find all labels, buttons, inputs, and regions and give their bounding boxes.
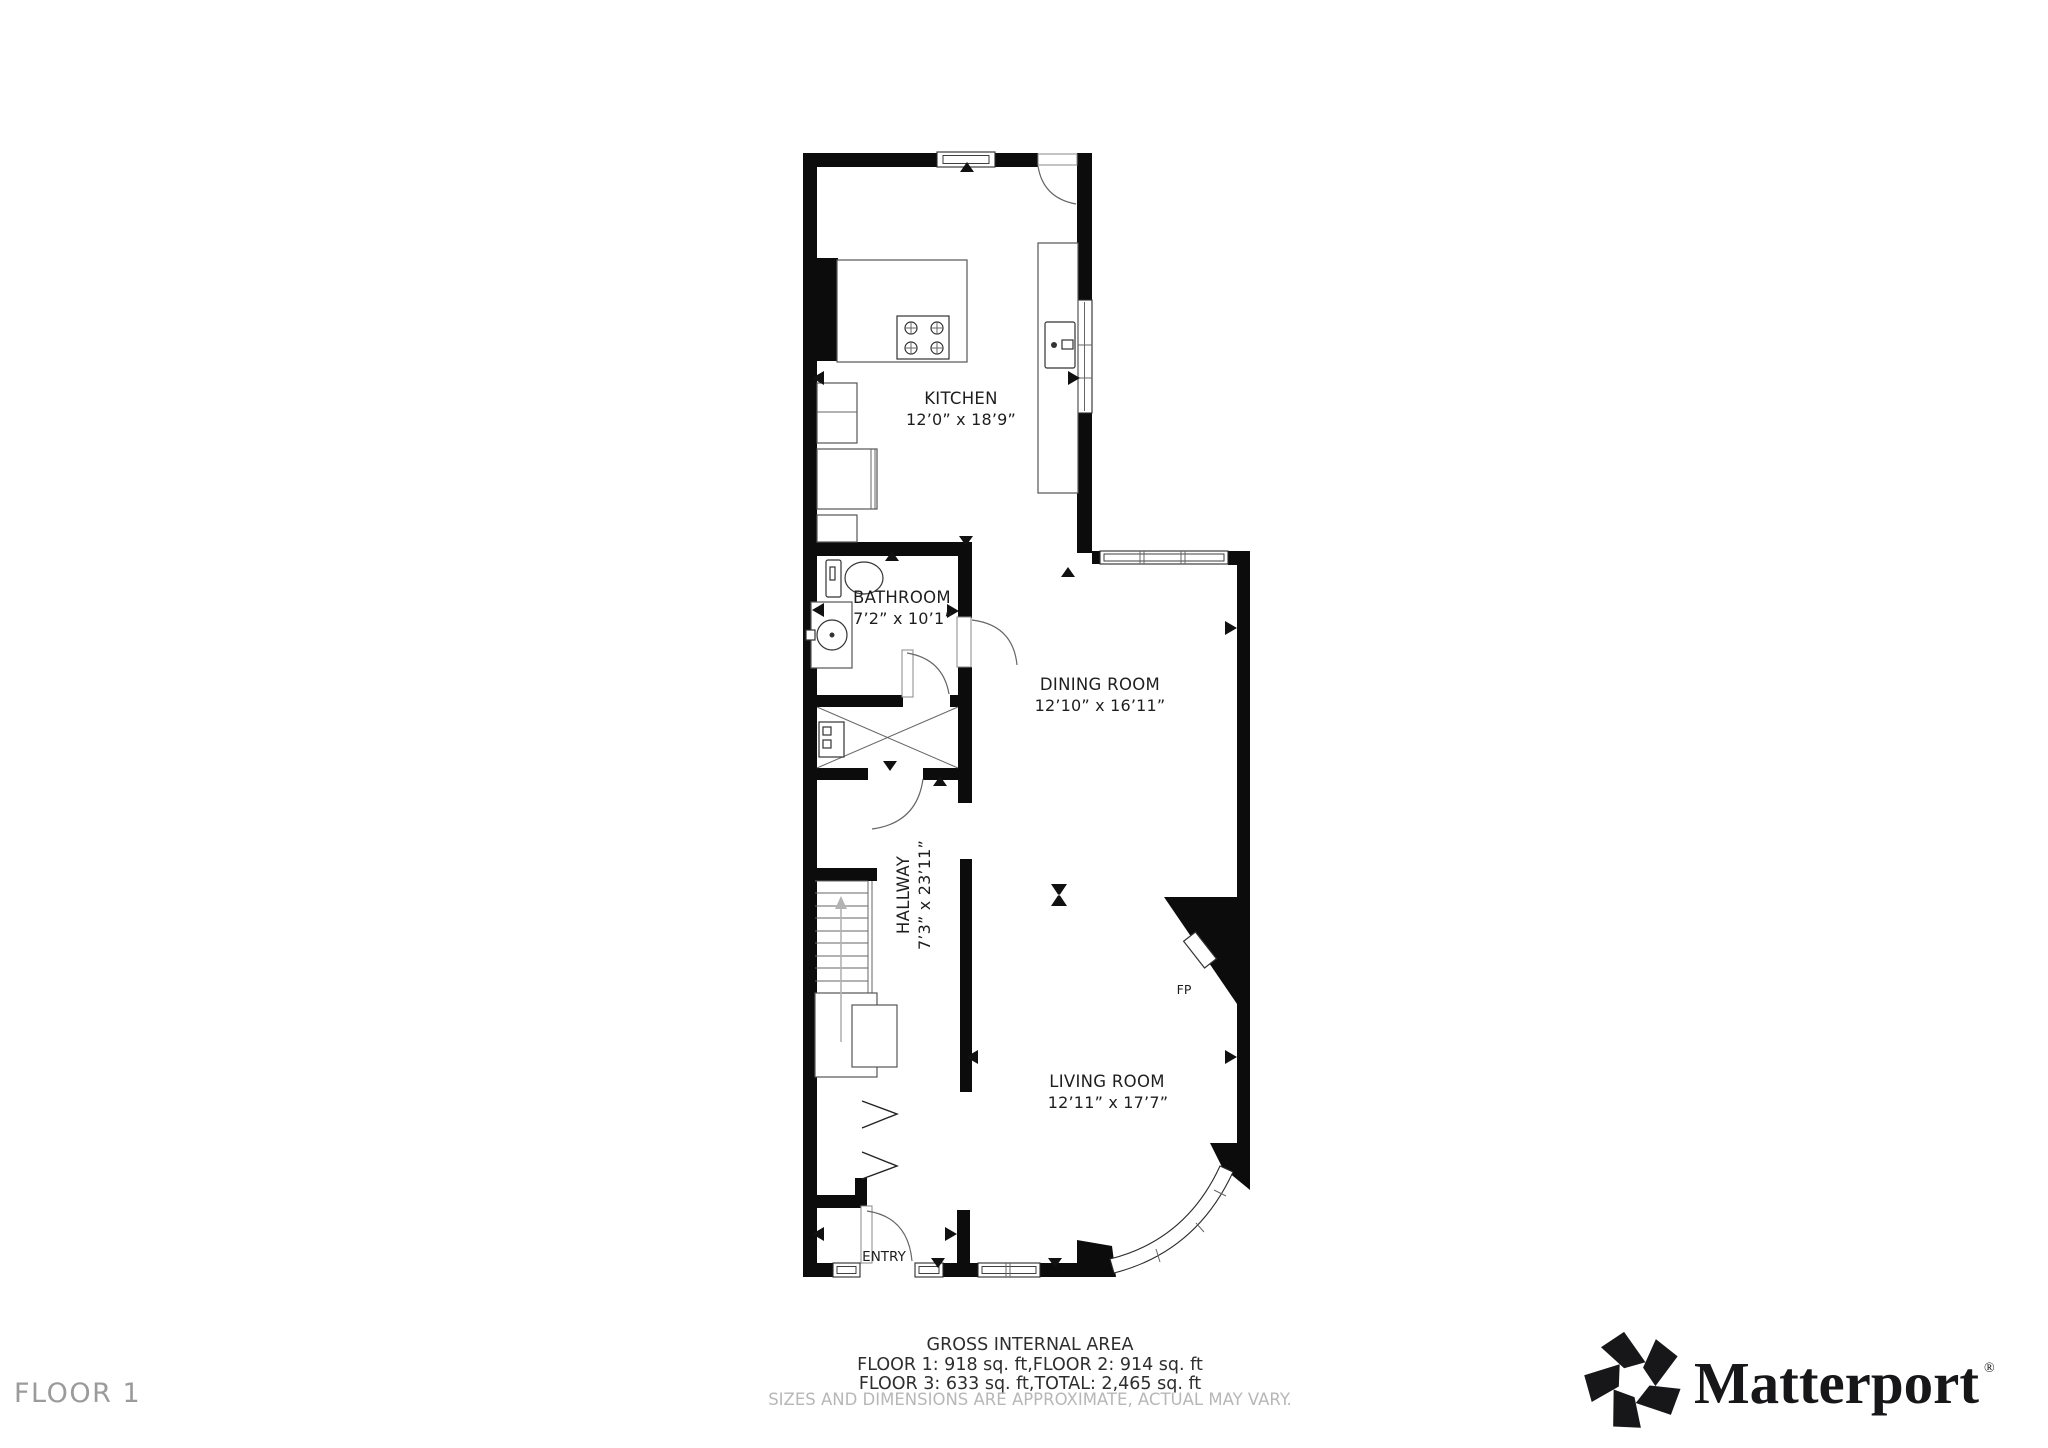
footer-areas-1: FLOOR 1: 918 sq. ft,FLOOR 2: 914 sq. ft	[857, 1355, 1203, 1375]
svg-text:BATHROOM: BATHROOM	[853, 588, 951, 607]
living-front-window	[978, 1263, 1040, 1277]
room-label-hallway: HALLWAY 7’3” x 23’11”	[894, 840, 934, 950]
fridge-icon	[817, 449, 877, 509]
kitchen-door-leaf	[1038, 154, 1077, 165]
svg-text:LIVING ROOM: LIVING ROOM	[1049, 1072, 1165, 1091]
matterport-wordmark: Matterport	[1694, 1350, 1979, 1416]
bay-window	[1110, 1166, 1233, 1273]
svg-text:12’11” x 17’7”: 12’11” x 17’7”	[1048, 1093, 1168, 1112]
room-label-bathroom: BATHROOM 7’2” x 10’1”	[853, 588, 953, 628]
room-labels: KITCHEN 12’0” x 18’9” BATHROOM 7’2” x 10…	[853, 389, 1168, 1265]
floor-label: FLOOR 1	[14, 1378, 141, 1409]
registered-trademark: ®	[1984, 1361, 1995, 1376]
svg-text:DINING ROOM: DINING ROOM	[1040, 675, 1160, 694]
room-label-living: LIVING ROOM 12’11” x 17’7”	[1048, 1072, 1168, 1112]
footer-disclaimer: SIZES AND DIMENSIONS ARE APPROXIMATE, AC…	[768, 1390, 1292, 1409]
matterport-pinwheel-icon	[1571, 1324, 1693, 1445]
room-label-kitchen: KITCHEN 12’0” x 18’9”	[906, 389, 1016, 429]
fireplace-label: FP	[1177, 982, 1192, 997]
svg-text:12’10” x 16’11”: 12’10” x 16’11”	[1035, 696, 1166, 715]
footer-title: GROSS INTERNAL AREA	[927, 1335, 1134, 1355]
entry-window-left	[833, 1263, 860, 1277]
matterport-logo: Matterport ®	[1571, 1324, 1995, 1445]
dining-door-leaf	[957, 617, 971, 667]
kitchen-side-window	[1077, 300, 1092, 413]
floorplan-page: FP KITCHEN 12’0” x 18’9” BATHROOM 7’2” x…	[0, 0, 2048, 1448]
svg-text:7’2” x 10’1”: 7’2” x 10’1”	[853, 609, 953, 628]
svg-text:12’0” x 18’9”: 12’0” x 18’9”	[906, 410, 1016, 429]
svg-text:KITCHEN: KITCHEN	[924, 389, 998, 408]
svg-text:7’3” x 23’11”: 7’3” x 23’11”	[915, 840, 934, 950]
room-label-dining: DINING ROOM 12’10” x 16’11”	[1035, 675, 1166, 715]
kitchen-counter-left	[817, 383, 857, 443]
utility-appliance-icon	[819, 722, 844, 757]
svg-text:HALLWAY: HALLWAY	[894, 855, 913, 934]
stairs	[815, 881, 897, 1077]
room-label-entry: ENTRY	[862, 1249, 906, 1265]
bathroom-door-leaf	[902, 650, 913, 697]
kitchen-sink-icon	[1045, 322, 1075, 368]
floorplan-canvas: FP KITCHEN 12’0” x 18’9” BATHROOM 7’2” x…	[0, 0, 2048, 1448]
closet-x-box	[817, 707, 958, 768]
kitchen-counter-lower	[817, 515, 857, 542]
bathroom-sink-icon	[806, 602, 852, 668]
stove-icon	[897, 316, 949, 359]
footer: GROSS INTERNAL AREA FLOOR 1: 918 sq. ft,…	[768, 1335, 1292, 1409]
dining-window	[1100, 551, 1228, 564]
wall-break-chevrons	[862, 1101, 897, 1179]
